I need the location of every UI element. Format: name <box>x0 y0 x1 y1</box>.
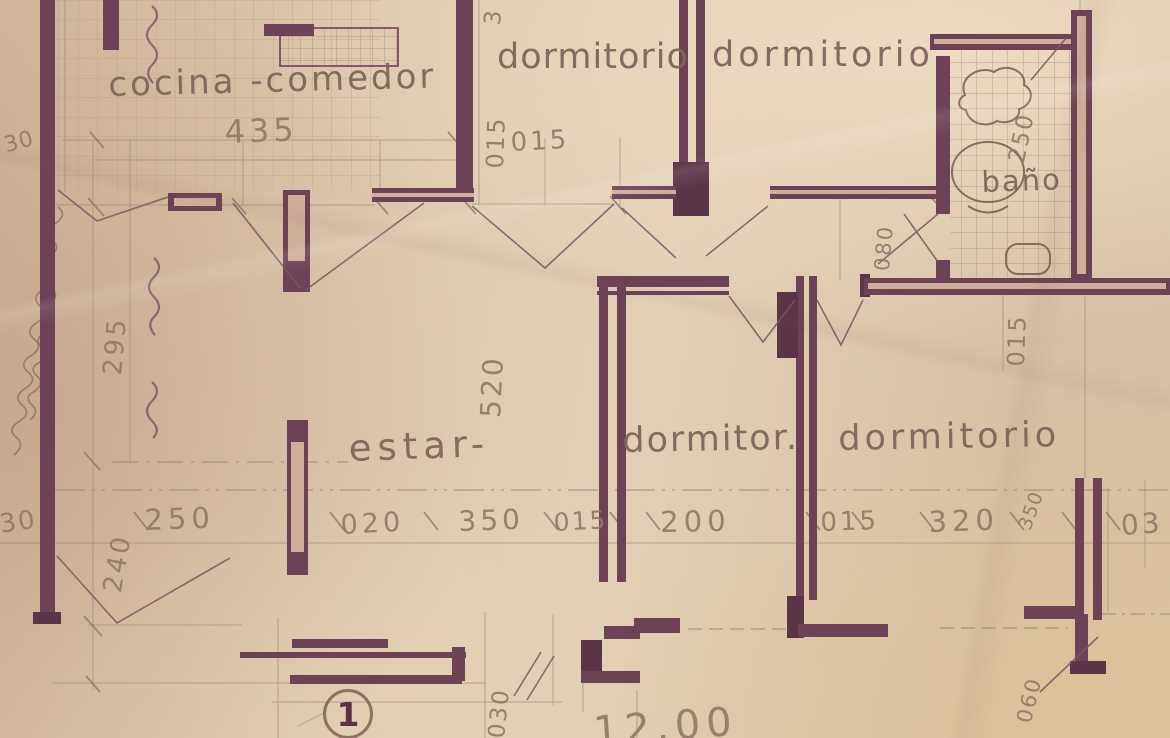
detail-marker-number: 1 <box>337 695 360 734</box>
dim-015: 015 <box>510 127 570 156</box>
room-label-dormitorio-4: dormitorio <box>838 418 1060 457</box>
dim-015-vertical: 015 <box>483 116 509 169</box>
dim-3-partial: 3 <box>482 9 506 26</box>
dim-30-edge-bottom: 30 <box>0 507 38 538</box>
dim-295-vertical: 295 <box>100 316 131 377</box>
dim-435: 435 <box>224 113 298 148</box>
room-label-bano: baño <box>981 165 1062 197</box>
dim-1200: 12.00 <box>592 702 739 738</box>
dim-015-a: 015 <box>553 507 608 535</box>
room-label-cocina-comedor: cocina -comedor <box>108 59 437 102</box>
dashed-lines-layer <box>55 462 1170 629</box>
door-swing-entry <box>57 556 230 623</box>
dim-015-b: 015 <box>820 508 880 536</box>
scanned-floor-plan: 1 cocina -comedor435dormitoriodormitorio… <box>0 0 1170 738</box>
dim-015-vertical-right: 015 <box>1004 314 1030 367</box>
door-swing-dormitorio4 <box>817 300 863 345</box>
dim-020: 020 <box>340 509 405 539</box>
dim-520-vertical: 520 <box>477 355 508 419</box>
dim-200: 200 <box>660 507 731 537</box>
room-label-estar: estar- <box>348 425 491 467</box>
dim-320: 320 <box>928 506 999 537</box>
room-label-dormitorio-2: dormitorio <box>712 38 934 73</box>
dim-030-vertical: 030 <box>486 687 514 738</box>
dim-03-edge: 03 <box>1120 509 1163 540</box>
dim-080-vertical: 080 <box>872 224 897 272</box>
dim-350: 350 <box>458 506 524 536</box>
room-label-dormitorio-1: dormitorio <box>497 40 689 75</box>
dim-250: 250 <box>144 504 215 535</box>
floor-plan-drawing <box>0 0 1170 738</box>
detail-marker-1: 1 <box>323 689 373 738</box>
room-label-dormitor: dormitor. <box>622 421 799 459</box>
door-swing-hall <box>472 204 614 268</box>
